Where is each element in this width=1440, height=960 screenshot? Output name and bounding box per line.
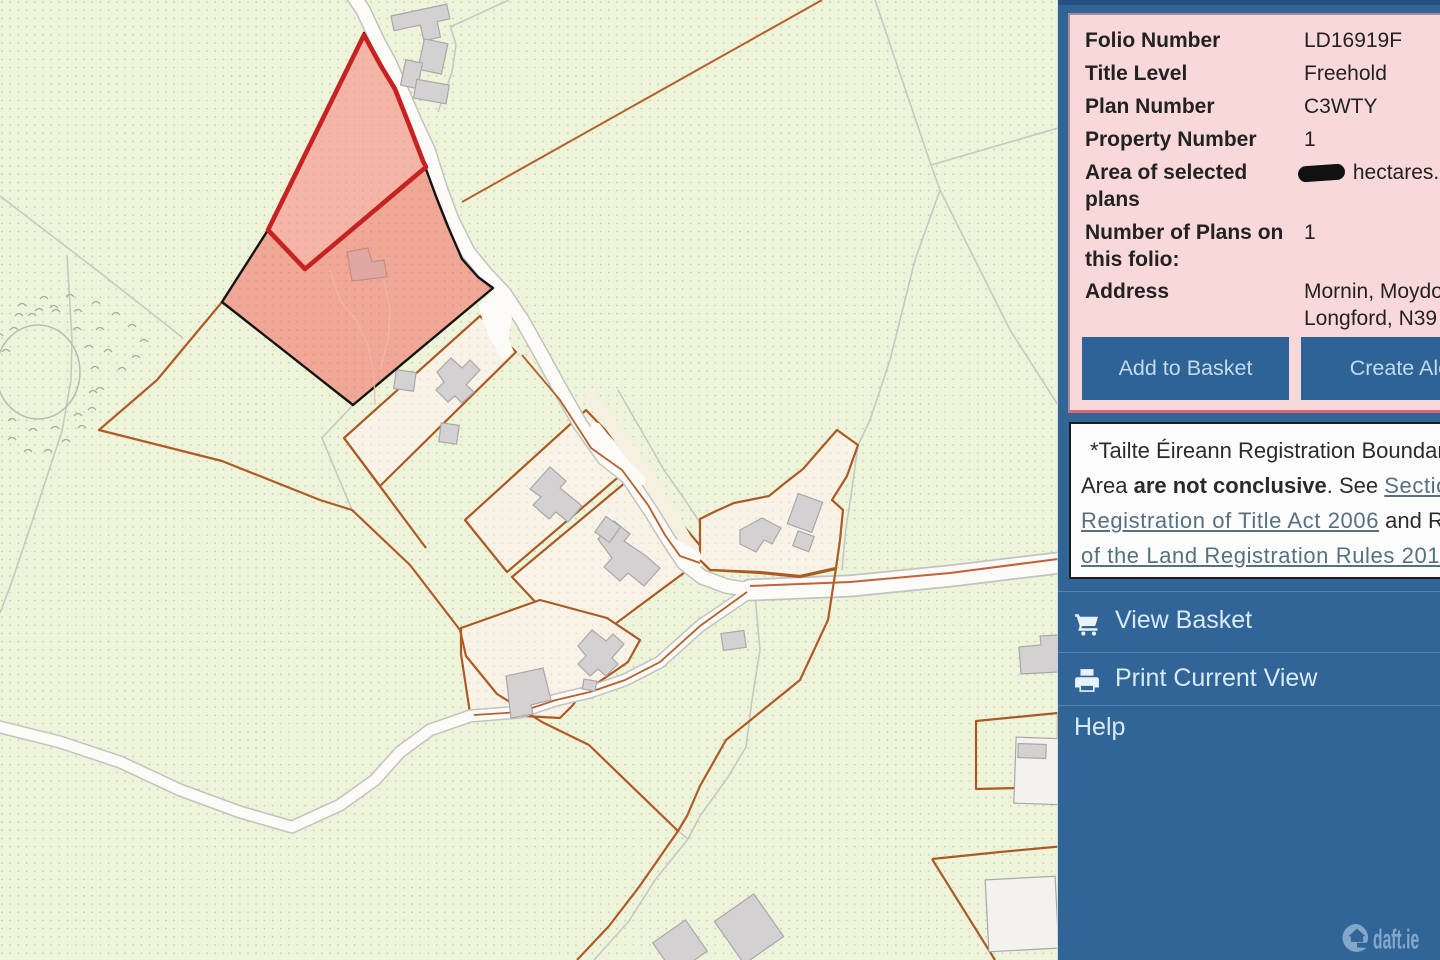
svg-text:daft.ie: daft.ie [1373, 923, 1419, 955]
